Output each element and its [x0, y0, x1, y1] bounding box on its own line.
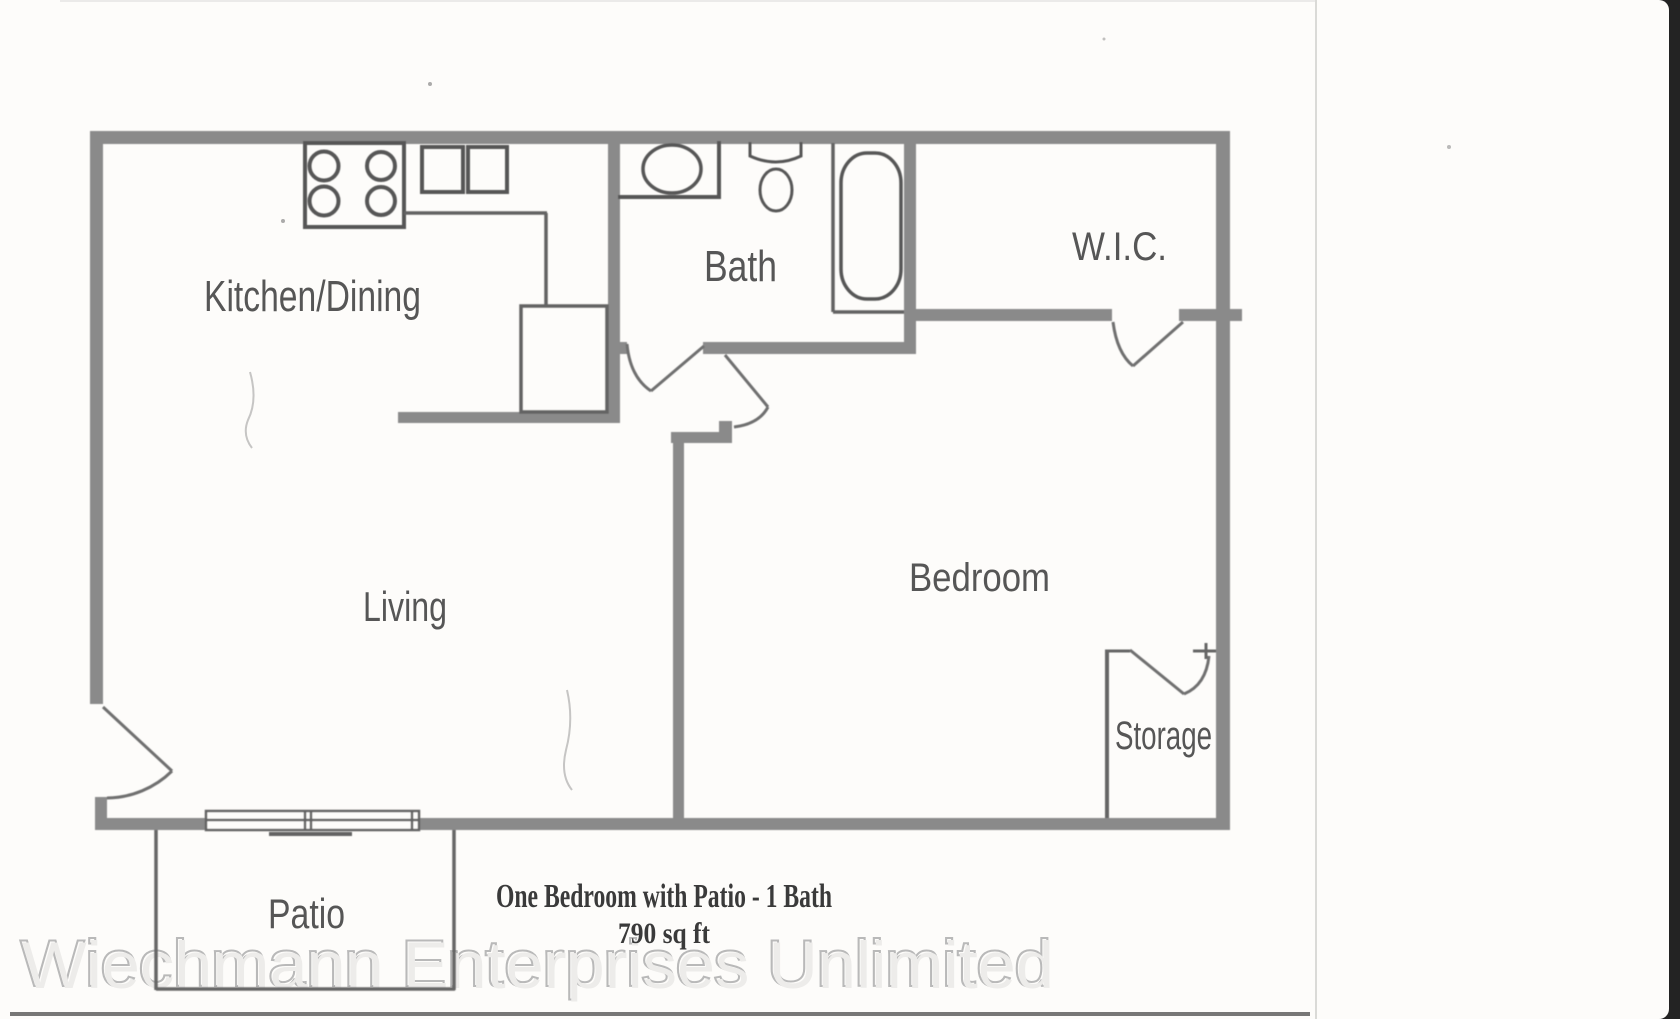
svg-text:790 sq ft: 790 sq ft [618, 917, 710, 950]
svg-text:Living: Living [363, 583, 447, 630]
svg-text:Bedroom: Bedroom [909, 556, 1050, 600]
svg-text:Wiechmann Enterprises Unlimite: Wiechmann Enterprises Unlimited [22, 928, 1054, 1002]
svg-text:One Bedroom with Patio - 1 Bat: One Bedroom with Patio - 1 Bath [496, 878, 832, 915]
svg-text:W.I.C.: W.I.C. [1072, 225, 1167, 269]
svg-text:Kitchen/Dining: Kitchen/Dining [204, 272, 421, 321]
svg-text:Storage: Storage [1115, 714, 1212, 758]
svg-text:Patio: Patio [268, 890, 345, 937]
svg-text:Bath: Bath [704, 242, 777, 291]
